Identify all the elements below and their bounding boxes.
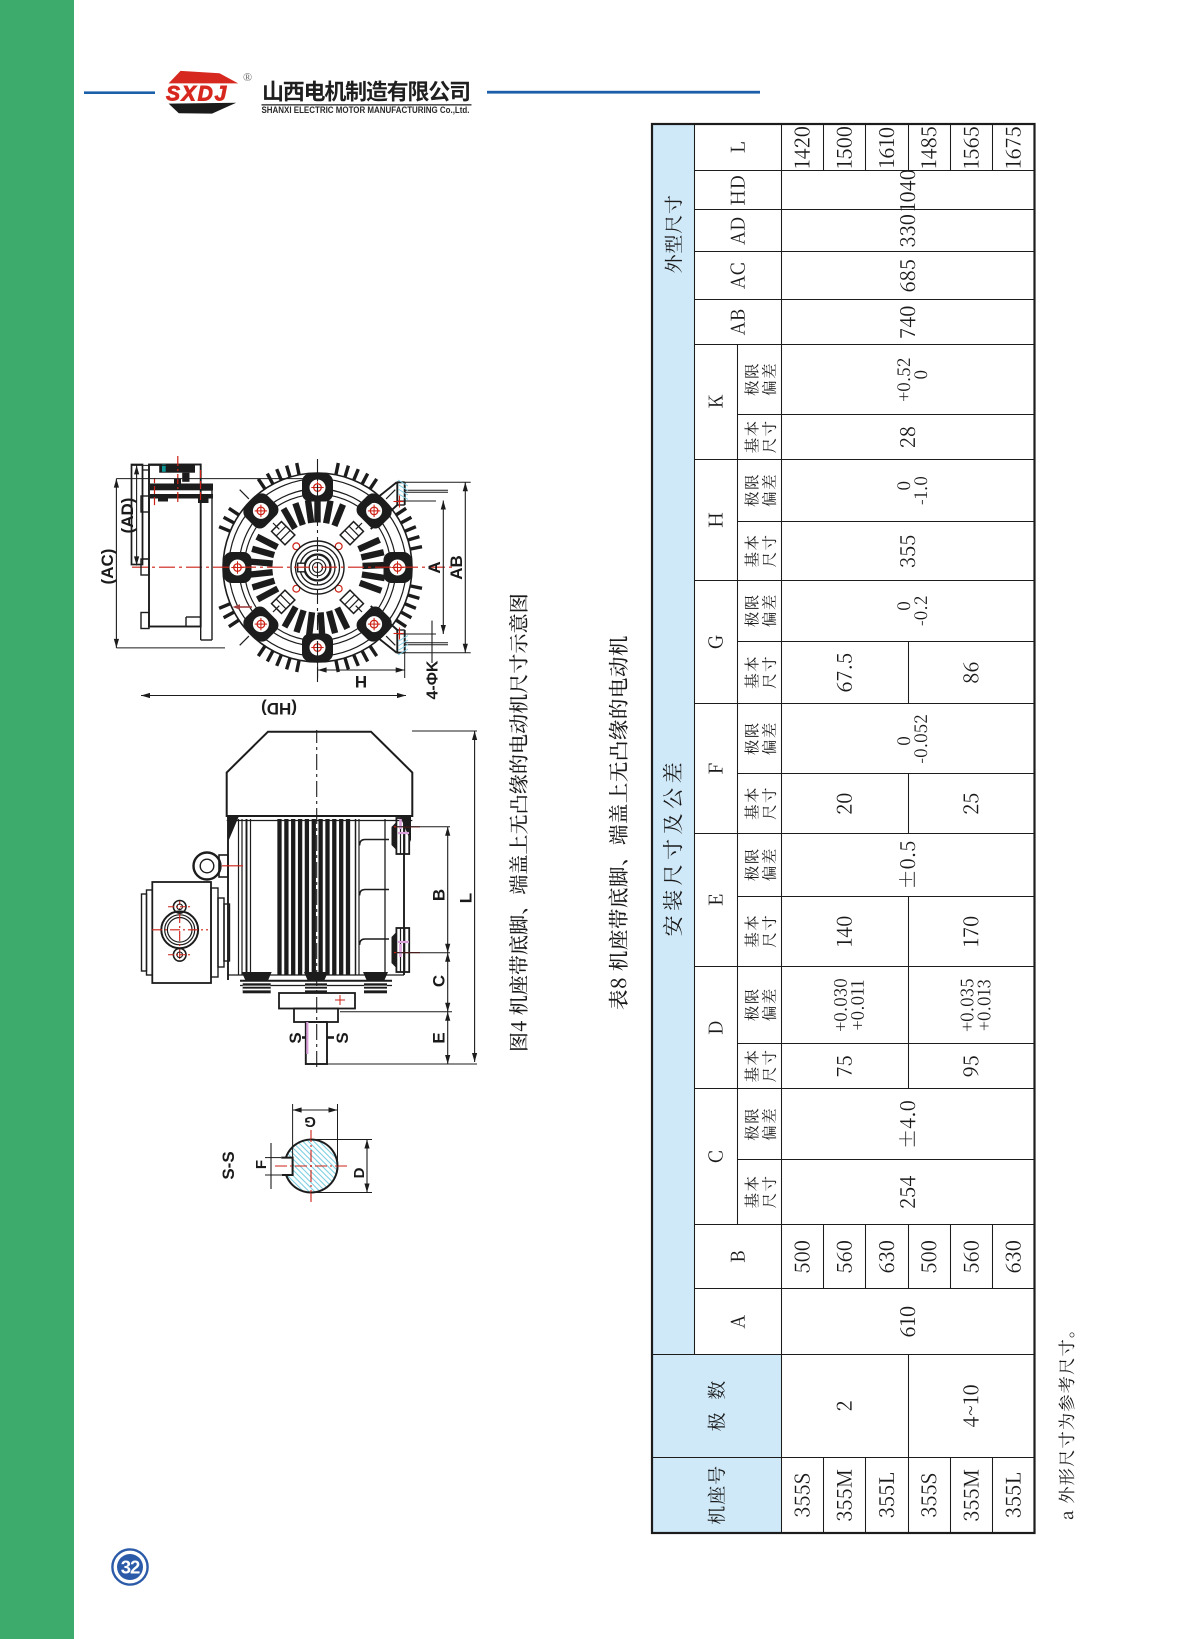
- svg-text:L: L: [457, 893, 476, 903]
- svg-text:S: S: [333, 1032, 352, 1043]
- svg-text:(HD): (HD): [261, 699, 297, 718]
- svg-text:4-ΦK: 4-ΦK: [425, 660, 442, 699]
- svg-text:E: E: [430, 1032, 449, 1043]
- svg-text:C: C: [430, 975, 449, 987]
- svg-text:A: A: [425, 561, 444, 573]
- svg-text:G: G: [304, 1113, 316, 1130]
- svg-text:S-S: S-S: [219, 1151, 238, 1179]
- svg-text:B: B: [430, 889, 449, 901]
- svg-text:(AC): (AC): [98, 549, 117, 585]
- svg-text:F: F: [253, 1160, 270, 1169]
- svg-text:H: H: [355, 672, 367, 691]
- svg-text:(AD): (AD): [118, 498, 137, 534]
- svg-text:AB: AB: [447, 555, 466, 580]
- svg-text:D: D: [351, 1167, 368, 1178]
